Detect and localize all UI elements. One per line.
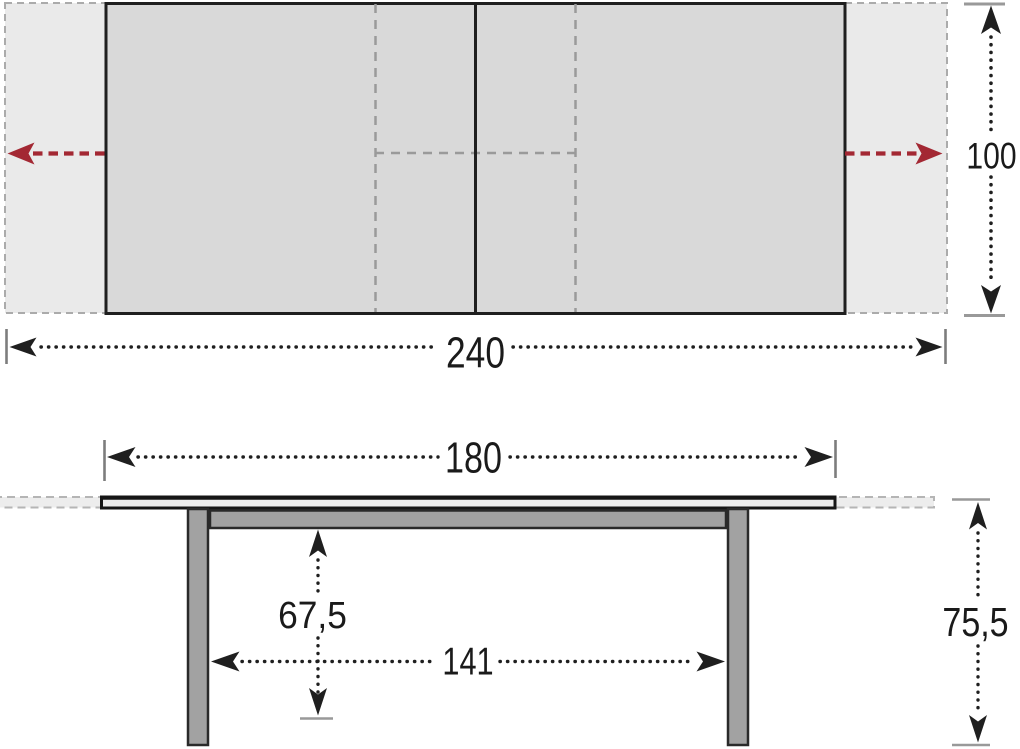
svg-text:141: 141 <box>442 640 493 683</box>
svg-text:67,5: 67,5 <box>278 594 347 636</box>
svg-text:100: 100 <box>966 136 1016 178</box>
svg-text:240: 240 <box>446 329 505 377</box>
svg-text:75,5: 75,5 <box>942 599 1008 645</box>
svg-text:180: 180 <box>445 435 502 483</box>
